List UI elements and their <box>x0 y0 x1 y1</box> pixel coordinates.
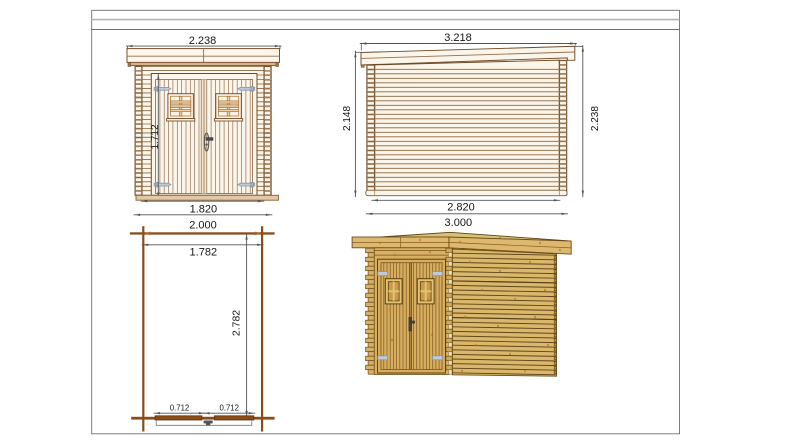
svg-text:2.820: 2.820 <box>447 201 475 213</box>
svg-text:0.712: 0.712 <box>170 403 190 412</box>
svg-text:1.712: 1.712 <box>150 124 161 149</box>
svg-text:2.148: 2.148 <box>342 106 353 131</box>
svg-text:3.218: 3.218 <box>444 32 472 44</box>
svg-text:0.712: 0.712 <box>219 403 239 412</box>
svg-text:2.000: 2.000 <box>189 220 217 232</box>
svg-text:2.782: 2.782 <box>231 310 243 336</box>
svg-text:1.820: 1.820 <box>190 204 218 216</box>
svg-text:1.782: 1.782 <box>190 247 218 259</box>
svg-text:3.000: 3.000 <box>445 217 473 229</box>
svg-text:2.238: 2.238 <box>590 106 601 131</box>
svg-text:2.238: 2.238 <box>189 35 217 47</box>
